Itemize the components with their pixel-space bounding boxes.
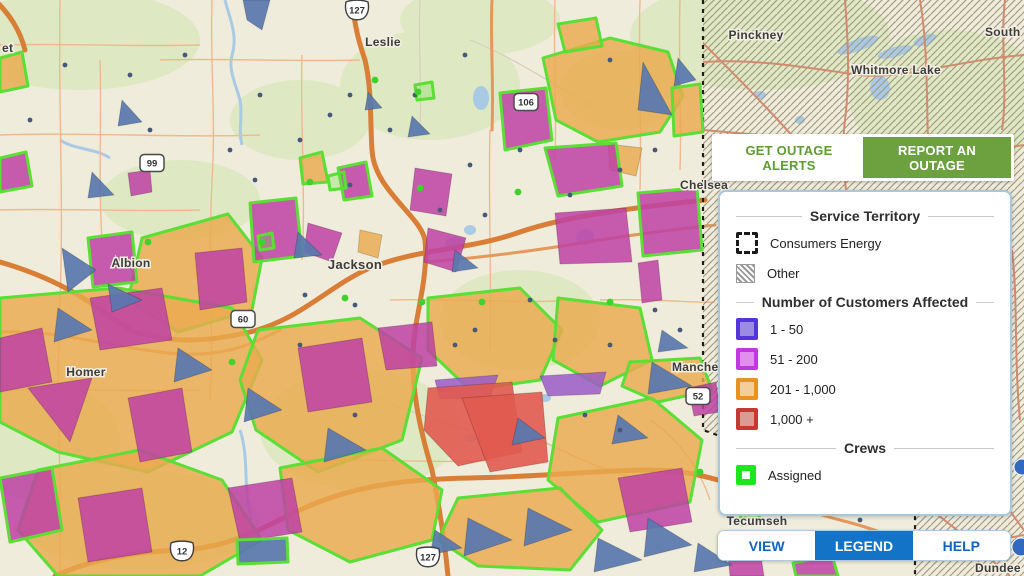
state-route-shield-60: 60: [231, 311, 255, 328]
hatched-territory-icon: [736, 264, 755, 283]
outage-point: [553, 338, 558, 343]
outage-polygon-1-50[interactable]: [237, 538, 288, 564]
legend-section-crews: Crews: [736, 440, 994, 456]
svg-text:60: 60: [238, 314, 249, 325]
outage-polygon-51-200[interactable]: [128, 388, 192, 462]
legend-section-service-territory: Service Territory: [736, 208, 994, 224]
outage-point: [528, 298, 533, 303]
outage-point: [183, 53, 188, 58]
town-label-tecumseh: Tecumseh: [727, 514, 788, 528]
town-label-homer: Homer: [66, 365, 106, 379]
outage-point: [608, 343, 613, 348]
outage-point: [438, 208, 443, 213]
crew-point: [419, 299, 426, 306]
outage-point: [858, 518, 863, 523]
crew-point: [342, 295, 349, 302]
outage-point: [328, 113, 333, 118]
legend-item-1-50: 1 - 50: [736, 314, 994, 344]
outage-point: [518, 148, 523, 153]
us-route-shield-127: 127: [345, 0, 368, 20]
outage-point: [148, 128, 153, 133]
outage-polygon-51-200[interactable]: [638, 188, 702, 256]
legend-panel: Service Territory Consumers Energy Other…: [718, 190, 1012, 516]
get-outage-alerts-button[interactable]: GET OUTAGE ALERTS: [715, 137, 863, 178]
outage-polygon-51-200[interactable]: [545, 143, 622, 196]
legend-item-51-200: 51 - 200: [736, 344, 994, 374]
outage-point: [608, 58, 613, 63]
outage-polygon-51-200[interactable]: [128, 170, 152, 196]
outage-polygon-51-200[interactable]: [195, 248, 247, 310]
outage-point: [298, 138, 303, 143]
outage-polygon-51-200[interactable]: [78, 488, 152, 562]
outage-point: [28, 118, 33, 123]
outage-point: [258, 93, 263, 98]
outage-point: [388, 128, 393, 133]
outage-point: [653, 148, 658, 153]
crew-point: [145, 239, 152, 246]
outage-point: [353, 413, 358, 418]
outage-point: [583, 413, 588, 418]
outage-point: [473, 328, 478, 333]
town-label-pinckney: Pinckney: [728, 28, 783, 42]
town-label-leslie: Leslie: [365, 35, 401, 49]
outage-polygon-51-200[interactable]: [250, 198, 302, 262]
town-label-manche: Manche: [672, 360, 719, 374]
map-mode-tabs: VIEW LEGEND HELP: [717, 530, 1011, 561]
crew-point: [417, 185, 424, 192]
crew-point: [372, 77, 379, 84]
crews-title: Crews: [844, 440, 886, 456]
outage-polygon-201-1000[interactable]: [558, 18, 602, 52]
outage-point: [483, 213, 488, 218]
outage-point: [678, 328, 683, 333]
outage-polygon-201-1000[interactable]: [300, 152, 328, 184]
swatch-51-200: [736, 348, 758, 370]
svg-text:12: 12: [177, 546, 188, 557]
town-label-whitmore-lake: Whitmore Lake: [851, 63, 941, 77]
outage-polygon-51-200[interactable]: [0, 328, 52, 392]
town-label-dundee: Dundee: [975, 561, 1021, 575]
crew-assigned-area[interactable]: [328, 172, 346, 190]
legend-item-crew-assigned: Assigned: [736, 460, 994, 490]
outage-polygon-201-1000[interactable]: [0, 52, 28, 92]
lake: [464, 225, 476, 235]
outage-actions-group: GET OUTAGE ALERTS REPORT AN OUTAGE: [712, 134, 1014, 181]
svg-text:99: 99: [147, 158, 158, 169]
outage-point: [468, 163, 473, 168]
legend-item-201-1000: 201 - 1,000: [736, 374, 994, 404]
crew-point: [415, 89, 422, 96]
outage-point: [348, 93, 353, 98]
state-route-shield-106: 106: [514, 94, 538, 111]
town-label-jackson: Jackson: [328, 257, 382, 272]
outage-polygon-1-50[interactable]: [540, 372, 606, 396]
town-label-et: et: [2, 41, 13, 55]
outage-point: [653, 308, 658, 313]
outage-point: [353, 303, 358, 308]
svg-text:127: 127: [420, 552, 436, 563]
svg-text:52: 52: [693, 391, 704, 402]
state-route-shield-99: 99: [140, 155, 164, 172]
crew-point: [697, 469, 704, 476]
outage-polygon-51-200[interactable]: [638, 260, 662, 303]
customers-affected-title: Number of Customers Affected: [762, 294, 968, 310]
report-an-outage-button[interactable]: REPORT AN OUTAGE: [863, 137, 1011, 178]
outage-polygon-51-200[interactable]: [298, 338, 372, 412]
outage-point: [253, 178, 258, 183]
outage-point: [298, 343, 303, 348]
outage-point: [228, 148, 233, 153]
service-territory-title: Service Territory: [810, 208, 920, 224]
outage-point: [128, 73, 133, 78]
legend-item-1000-plus: 1,000 +: [736, 404, 994, 434]
town-label-albion: Albion: [111, 256, 150, 270]
outage-point: [463, 53, 468, 58]
outage-point: [348, 183, 353, 188]
crew-assigned-icon: [736, 465, 756, 485]
svg-text:127: 127: [349, 5, 365, 16]
outage-polygon-201-1000[interactable]: [672, 84, 703, 136]
outage-polygon-51-200[interactable]: [555, 208, 632, 264]
dashed-territory-icon: [736, 232, 758, 254]
legend-item-consumers-energy: Consumers Energy: [736, 228, 994, 258]
svg-text:106: 106: [518, 97, 534, 108]
outage-point: [63, 63, 68, 68]
swatch-1000-plus: [736, 408, 758, 430]
crew-point: [259, 239, 266, 246]
swatch-1-50: [736, 318, 758, 340]
legend-section-customers-affected: Number of Customers Affected: [736, 294, 994, 310]
outage-point: [568, 193, 573, 198]
outage-polygon-51-200[interactable]: [0, 152, 32, 192]
town-label-south: South: [985, 25, 1021, 39]
outage-point: [618, 428, 623, 433]
crew-point: [515, 189, 522, 196]
tab-view[interactable]: VIEW: [718, 531, 815, 560]
forest-patch: [230, 80, 370, 160]
outage-point: [303, 293, 308, 298]
legend-item-other-territory: Other: [736, 258, 994, 288]
state-road: [491, 0, 492, 130]
outage-point: [618, 168, 623, 173]
swatch-201-1000: [736, 378, 758, 400]
outage-point: [453, 343, 458, 348]
crew-point: [479, 299, 486, 306]
crew-point: [607, 299, 614, 306]
crew-point: [229, 359, 236, 366]
tab-legend[interactable]: LEGEND: [815, 531, 912, 560]
outage-polygon-51-200[interactable]: [0, 468, 62, 542]
outage-polygon-51-200[interactable]: [410, 168, 452, 216]
us-route-shield-127: 127: [416, 547, 439, 567]
state-route-shield-52: 52: [686, 388, 710, 405]
tab-help[interactable]: HELP: [913, 531, 1010, 560]
us-route-shield-12: 12: [170, 541, 193, 561]
outage-polygon-51-200[interactable]: [228, 478, 302, 542]
outage-polygon-51-200[interactable]: [378, 322, 437, 370]
crew-point: [307, 179, 314, 186]
lake: [473, 86, 489, 110]
